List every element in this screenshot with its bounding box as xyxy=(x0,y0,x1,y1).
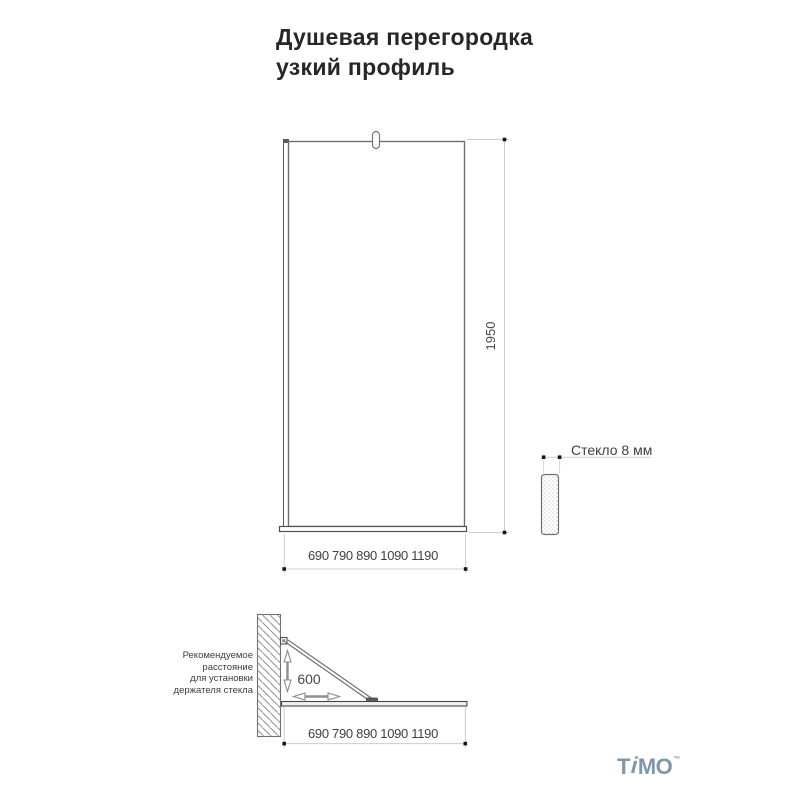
glass-plan-bar xyxy=(282,702,468,707)
page-title-line1: Душевая перегородка xyxy=(276,22,533,52)
holder-distance-label: 600 xyxy=(288,671,330,687)
glass-holder-clip xyxy=(373,132,380,149)
dimension-dot xyxy=(464,742,468,746)
holder-note-line: для установки xyxy=(148,673,253,685)
plan-width-dimension-label: 690 790 890 1090 1190 xyxy=(273,726,473,741)
holder-note-line: расстояние xyxy=(148,662,253,674)
height-dimension-label: 1950 xyxy=(483,306,499,366)
dimension-dot xyxy=(282,742,286,746)
page-title: Душевая перегородка узкий профиль xyxy=(276,22,533,82)
glass-thickness-label: Стекло 8 мм xyxy=(571,442,652,458)
page-title-line2: узкий профиль xyxy=(276,52,533,82)
horizontal-double-arrow xyxy=(294,693,340,700)
front-wall-profile-cap xyxy=(284,140,289,144)
glass-section xyxy=(542,475,559,535)
logo-letters-mo: MO xyxy=(638,756,672,778)
dimension-dot xyxy=(503,138,507,142)
front-width-dimension-label: 690 790 890 1090 1190 xyxy=(273,548,473,563)
wall-section xyxy=(258,615,281,737)
front-glass-panel xyxy=(289,142,465,527)
dimension-dot xyxy=(542,455,546,459)
wall-bracket-pin xyxy=(282,639,285,642)
front-bottom-profile xyxy=(280,527,467,532)
trademark-symbol: ™ xyxy=(673,756,680,763)
dimension-dot xyxy=(503,531,507,535)
dimension-dot xyxy=(558,455,562,459)
holder-note: Рекомендуемое расстояние для установки д… xyxy=(148,650,253,696)
holder-note-line: держателя стекла xyxy=(148,685,253,697)
front-wall-profile xyxy=(284,140,289,527)
diagram-page: Душевая перегородка узкий профиль 1950 6… xyxy=(0,0,800,800)
diagram-linework xyxy=(0,0,800,800)
holder-note-line: Рекомендуемое xyxy=(148,650,253,662)
dimension-dot xyxy=(464,567,468,571)
dimension-dot xyxy=(282,567,286,571)
timo-logo: T i MO ™ xyxy=(617,755,680,778)
